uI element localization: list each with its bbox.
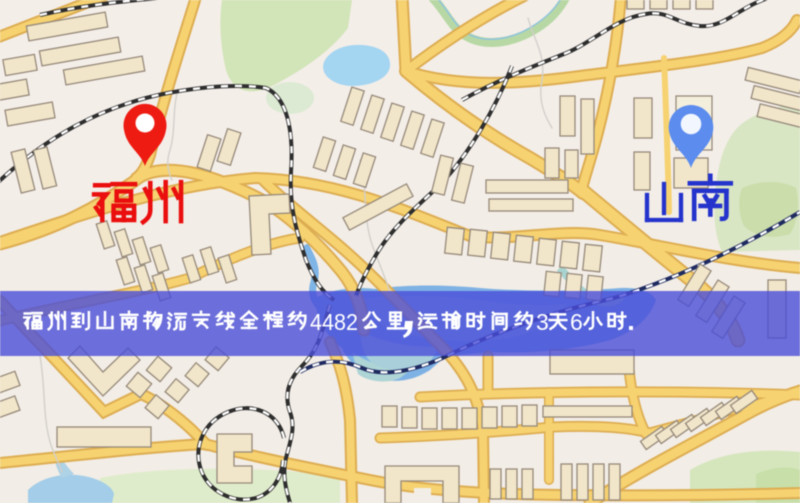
svg-text:3: 3: [536, 309, 549, 335]
svg-text:4482: 4482: [310, 309, 358, 335]
svg-text:6: 6: [570, 309, 583, 335]
